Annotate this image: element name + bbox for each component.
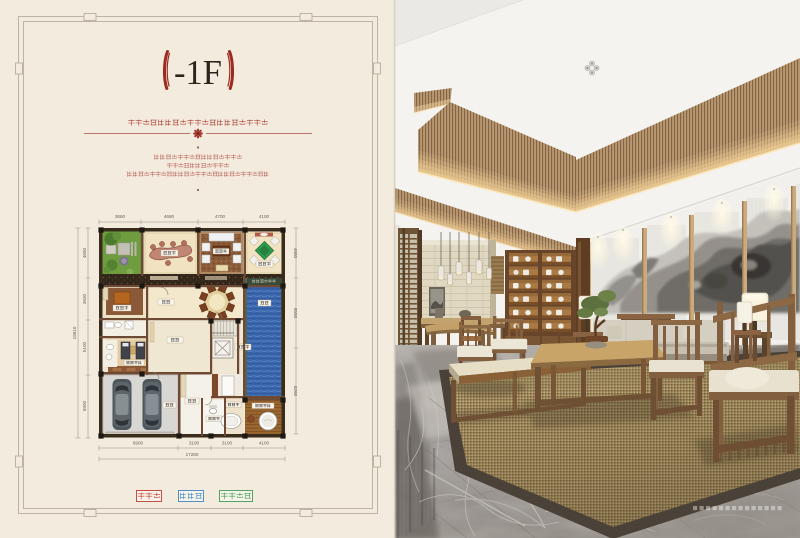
svg-text:4680: 4680 <box>293 248 298 259</box>
svg-text:6260: 6260 <box>293 386 298 397</box>
svg-text:4100: 4100 <box>259 214 270 219</box>
svg-text:4680: 4680 <box>82 247 87 258</box>
svg-text:19610: 19610 <box>72 326 77 339</box>
svg-text:-1F: -1F <box>174 54 222 92</box>
svg-text:6900: 6900 <box>133 441 144 446</box>
svg-text:3100: 3100 <box>222 441 233 446</box>
svg-text:4700: 4700 <box>215 214 226 219</box>
svg-text:3660: 3660 <box>115 214 126 219</box>
svg-text:3100: 3100 <box>189 441 200 446</box>
svg-text:3930: 3930 <box>82 293 87 304</box>
svg-text:4100: 4100 <box>259 441 270 446</box>
svg-text:5900: 5900 <box>82 400 87 411</box>
svg-text:4680: 4680 <box>164 214 175 219</box>
svg-text:6550: 6550 <box>293 308 298 319</box>
svg-text:17280: 17280 <box>186 452 199 457</box>
svg-text:5100: 5100 <box>82 341 87 352</box>
